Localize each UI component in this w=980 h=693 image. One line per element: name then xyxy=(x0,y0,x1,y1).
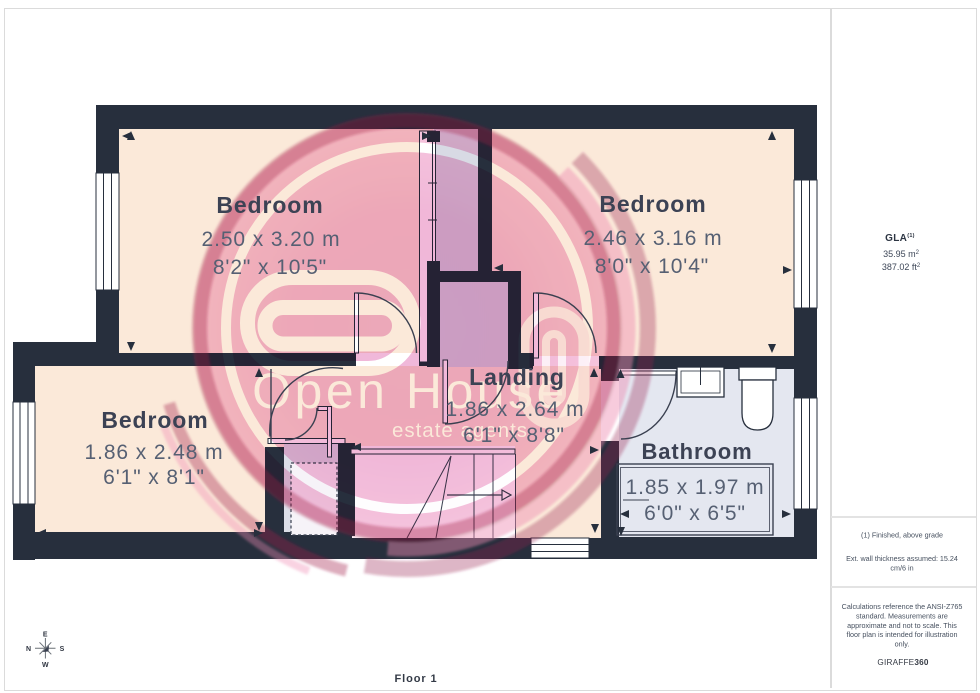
svg-text:GIRAFFE360: GIRAFFE360 xyxy=(877,658,928,667)
svg-text:(1) Finished, above grade: (1) Finished, above grade xyxy=(861,531,943,540)
svg-text:approximate and not to scale.: approximate and not to scale. This xyxy=(847,621,957,630)
svg-text:6'1" x 8'1": 6'1" x 8'1" xyxy=(103,466,205,489)
svg-text:8'2" x 10'5": 8'2" x 10'5" xyxy=(213,256,327,279)
svg-text:Bedroom: Bedroom xyxy=(216,192,323,218)
svg-text:GLA(1): GLA(1) xyxy=(885,233,915,244)
svg-text:6'0" x 6'5": 6'0" x 6'5" xyxy=(644,502,746,525)
svg-text:W: W xyxy=(42,662,49,669)
svg-text:standard. Measurements are: standard. Measurements are xyxy=(856,612,948,621)
svg-text:N: N xyxy=(26,646,31,653)
svg-text:2.50 x 3.20 m: 2.50 x 3.20 m xyxy=(202,228,341,251)
svg-text:floor plan is intended for ill: floor plan is intended for illustration xyxy=(846,630,957,639)
svg-text:Bedroom: Bedroom xyxy=(599,191,706,217)
svg-text:Bathroom: Bathroom xyxy=(641,439,752,464)
svg-text:35.95 m2: 35.95 m2 xyxy=(883,249,920,259)
svg-text:Ext. wall thickness assumed: 1: Ext. wall thickness assumed: 15.24 xyxy=(846,554,958,563)
svg-text:cm/6 in: cm/6 in xyxy=(890,564,913,573)
svg-text:1.86 x 2.64 m: 1.86 x 2.64 m xyxy=(446,398,585,421)
svg-text:1.86 x 2.48 m: 1.86 x 2.48 m xyxy=(85,441,224,464)
svg-text:2.46 x 3.16 m: 2.46 x 3.16 m xyxy=(584,227,723,250)
svg-text:Bedroom: Bedroom xyxy=(101,407,208,433)
svg-text:8'0" x 10'4": 8'0" x 10'4" xyxy=(595,255,709,278)
svg-text:only.: only. xyxy=(895,640,910,649)
svg-text:Landing: Landing xyxy=(469,364,565,390)
svg-text:6'1" x 8'8": 6'1" x 8'8" xyxy=(463,424,565,447)
svg-text:1.85 x 1.97 m: 1.85 x 1.97 m xyxy=(626,476,765,499)
svg-text:S: S xyxy=(60,646,65,653)
svg-text:E: E xyxy=(43,632,48,639)
svg-text:Floor 1: Floor 1 xyxy=(395,673,438,685)
svg-text:Calculations reference the ANS: Calculations reference the ANSI-Z765 xyxy=(842,602,963,611)
svg-text:387.02 ft2: 387.02 ft2 xyxy=(882,262,921,272)
